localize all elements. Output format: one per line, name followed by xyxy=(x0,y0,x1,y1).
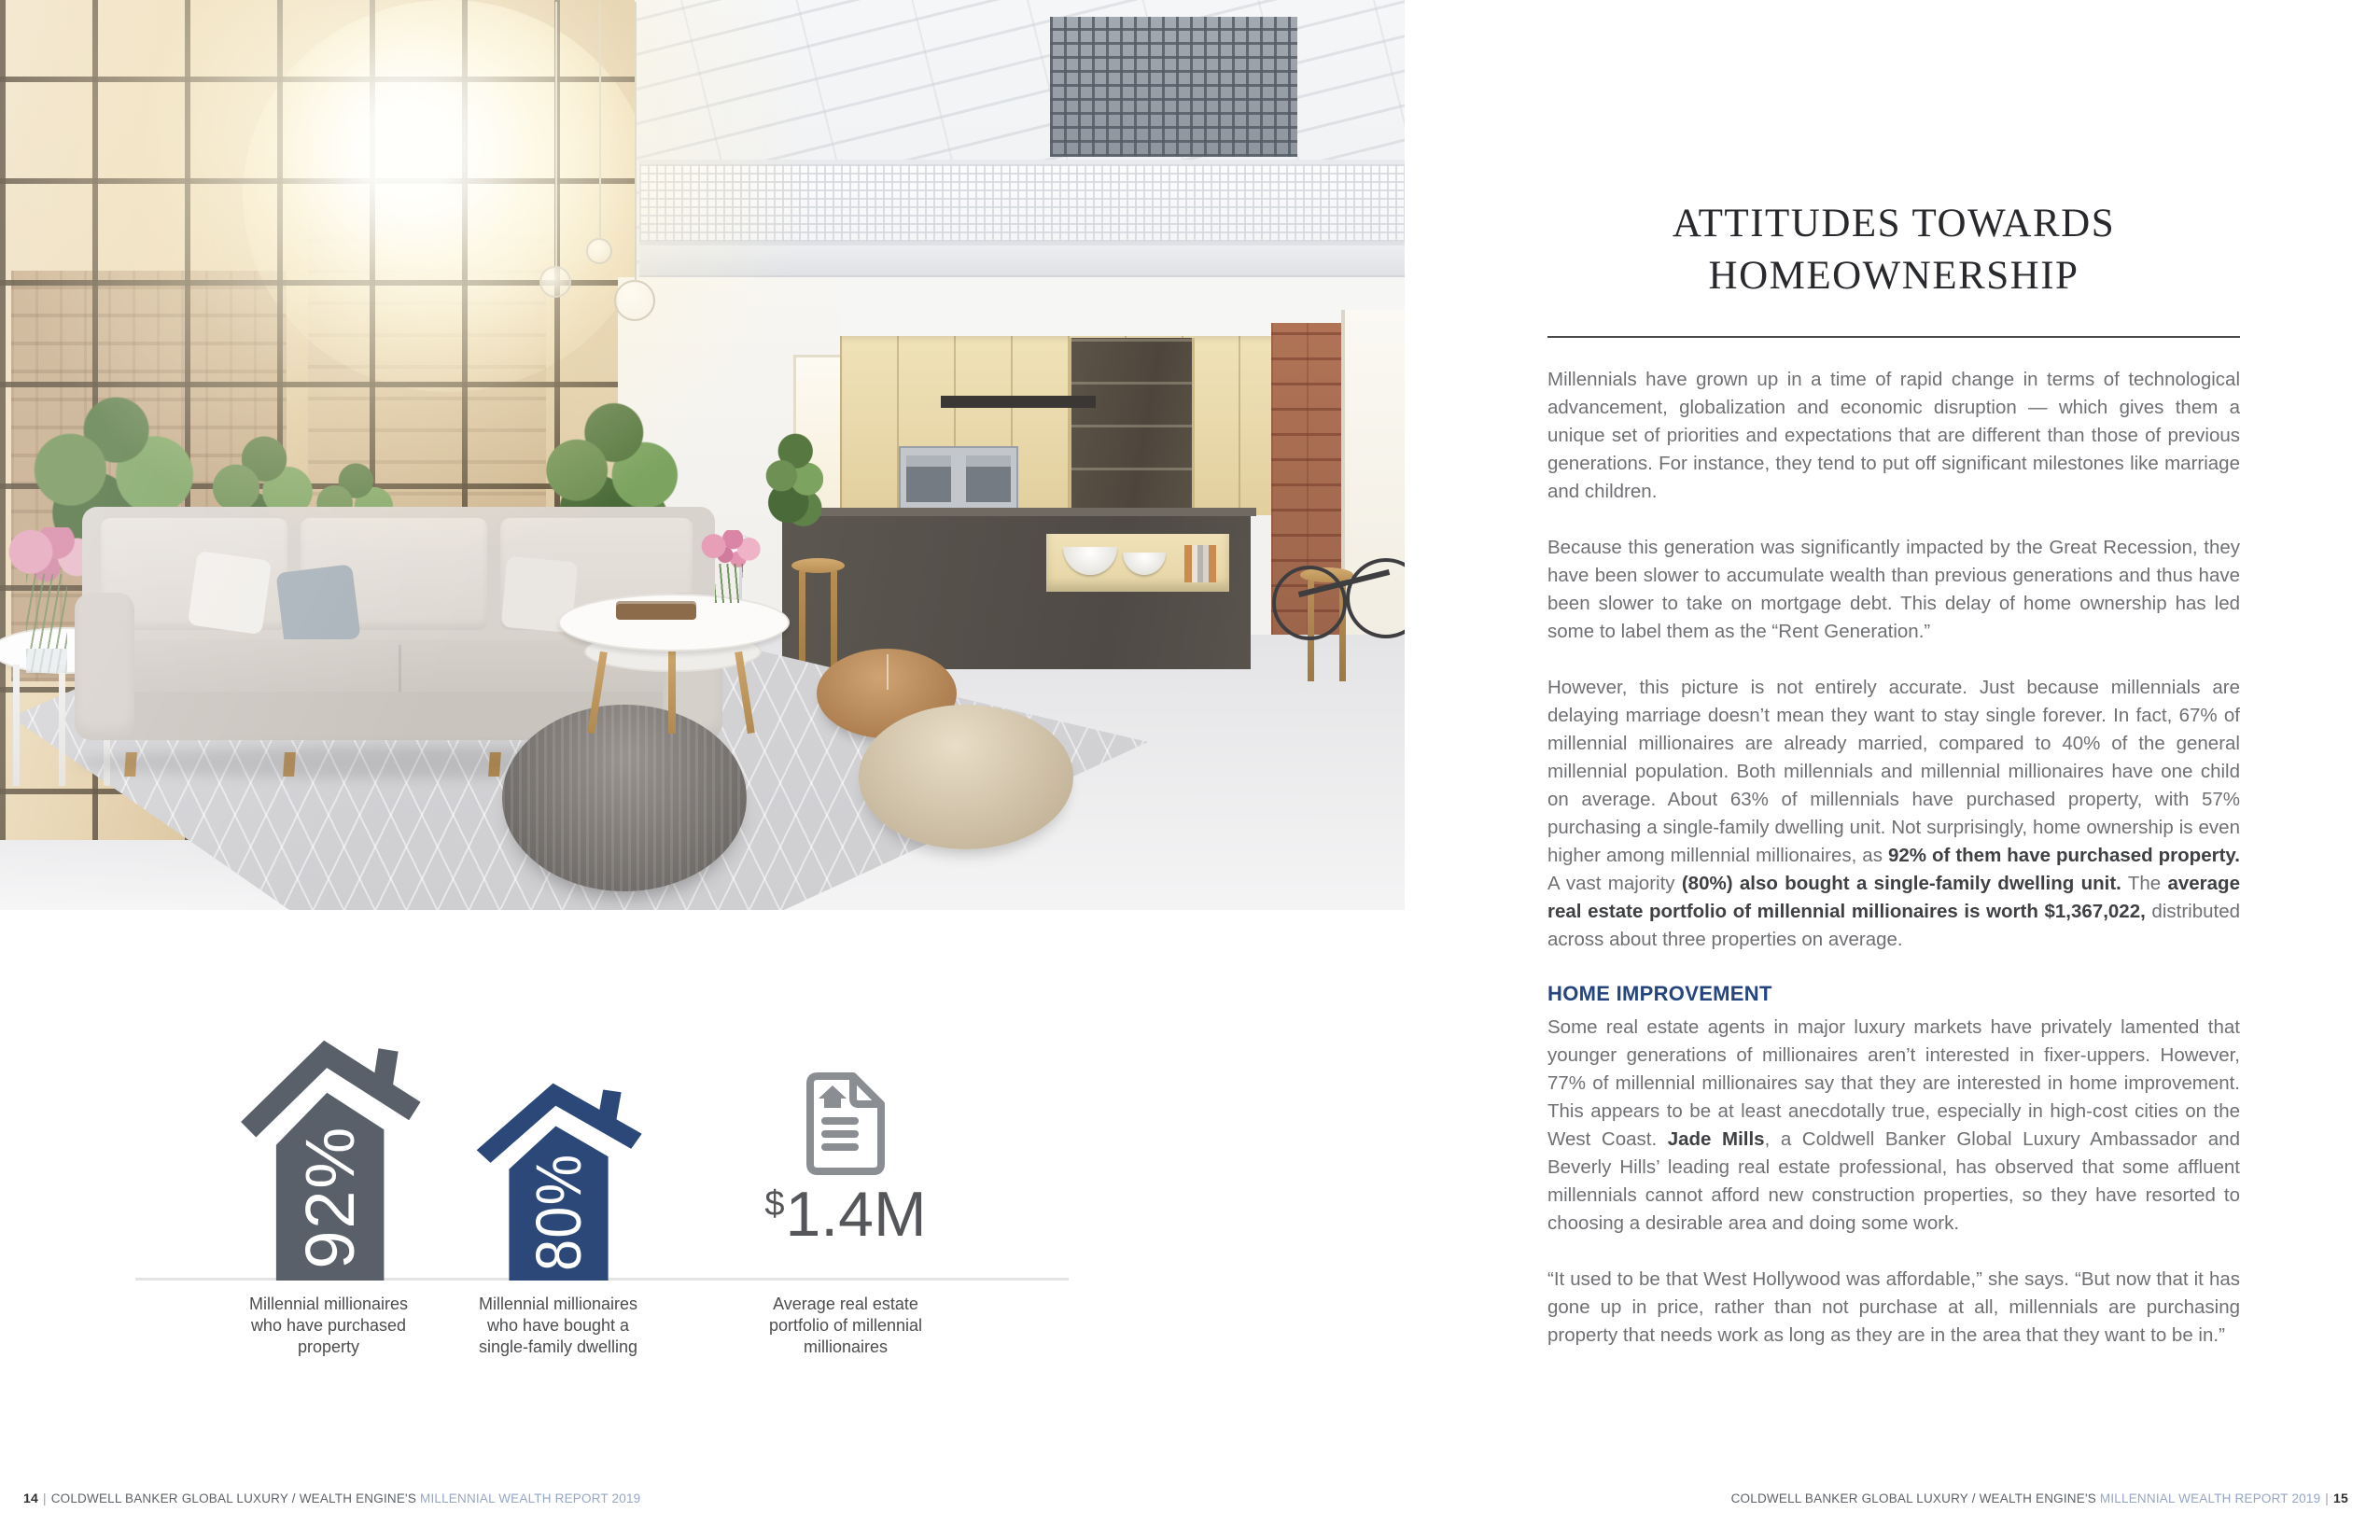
hero-photo xyxy=(0,0,1405,910)
range-hood xyxy=(941,396,1096,408)
body-text: A vast majority xyxy=(1547,873,1682,894)
bowl xyxy=(1063,547,1117,575)
paragraph: “It used to be that West Hollywood was a… xyxy=(1547,1266,2240,1350)
footer-brand: COLDWELL BANKER GLOBAL LUXURY / WEALTH E… xyxy=(1731,1491,2096,1505)
article-body: Millennials have grown up in a time of r… xyxy=(1547,366,2240,1350)
built-in-appliances xyxy=(899,446,1018,511)
page-number: 15 xyxy=(2333,1491,2348,1505)
table-leg xyxy=(668,651,676,734)
page-number: 14 xyxy=(23,1491,38,1505)
sofa-arm xyxy=(75,593,134,740)
document-icon-svg xyxy=(799,1071,892,1176)
title-line-2: HOMEOWNERSHIP xyxy=(1709,254,2079,298)
stat-label: Average real estate portfolio of millenn… xyxy=(715,1294,976,1358)
article: ATTITUDES TOWARDS HOMEOWNERSHIP Millenni… xyxy=(1547,198,2240,1378)
title-rule xyxy=(1547,336,2240,338)
table-leg xyxy=(735,651,755,734)
coffee-table xyxy=(558,594,786,734)
footer-report-title: MILLENNIAL WEALTH REPORT 2019 xyxy=(2100,1491,2320,1505)
section-heading: HOME IMPROVEMENT xyxy=(1547,982,2240,1006)
footer-separator: | xyxy=(2320,1491,2333,1505)
footer-report-title: MILLENNIAL WEALTH REPORT 2019 xyxy=(420,1491,640,1505)
stat-label: Millennial millionaires who have purchas… xyxy=(198,1294,459,1358)
house-icon: 80% xyxy=(472,1078,642,1281)
gray-pouf xyxy=(502,705,747,891)
open-shelf xyxy=(1046,534,1229,592)
house-icon: 92% xyxy=(236,1034,421,1281)
beige-pouf xyxy=(859,705,1073,849)
paragraph: Because this generation was significantl… xyxy=(1547,534,2240,646)
throw-pillow xyxy=(188,551,272,635)
pendant-lamp xyxy=(614,280,655,321)
tulip-bouquet xyxy=(691,530,767,603)
body-text: Because this generation was significantl… xyxy=(1547,537,2240,642)
footer-brand: COLDWELL BANKER GLOBAL LUXURY / WEALTH E… xyxy=(51,1491,416,1505)
house-icon-svg: 92% xyxy=(236,1034,421,1281)
property-document-icon xyxy=(799,1071,892,1176)
potted-plant xyxy=(765,427,823,535)
sofa-leg xyxy=(124,752,137,777)
body-text: “It used to be that West Hollywood was a… xyxy=(1547,1268,2240,1346)
bold-text: (80%) also bought a single-family dwelli… xyxy=(1682,873,2121,894)
stat-label: Millennial millionaires who have bought … xyxy=(427,1294,689,1358)
report-spread: 92% 80% $1.4M Millennial millionaires wh… xyxy=(0,0,2380,1540)
pendant-lamp xyxy=(586,238,612,264)
dollar-sign: $ xyxy=(764,1184,784,1224)
stat-value: 92% xyxy=(291,1126,369,1269)
mezzanine-floor xyxy=(639,245,1405,277)
paragraph: However, this picture is not entirely ac… xyxy=(1547,674,2240,954)
serving-tray xyxy=(616,601,696,620)
body-text: The xyxy=(2121,873,2168,894)
throw-pillow xyxy=(275,564,360,647)
stat-value: 80% xyxy=(523,1154,595,1271)
sofa-leg xyxy=(283,752,296,777)
body-text: Millennials have grown up in a time of r… xyxy=(1547,369,2240,502)
paragraph: Some real estate agents in major luxury … xyxy=(1547,1014,2240,1238)
pendant-lamp xyxy=(539,266,571,298)
sofa-leg xyxy=(488,752,501,777)
footer-left: 14|COLDWELL BANKER GLOBAL LUXURY / WEALT… xyxy=(23,1491,640,1505)
footer-separator: | xyxy=(38,1491,51,1505)
title-line-1: ATTITUDES TOWARDS xyxy=(1673,202,2115,245)
bowl xyxy=(1123,553,1166,575)
kitchen-island xyxy=(782,514,1251,669)
stat-amount: 1.4M xyxy=(785,1179,926,1250)
mezzanine-railing xyxy=(639,160,1405,245)
books xyxy=(1184,545,1216,582)
stat-value: $1.4M xyxy=(743,1178,948,1251)
bold-text: Jade Mills xyxy=(1668,1128,1765,1150)
paragraph: Millennials have grown up in a time of r… xyxy=(1547,366,2240,506)
bold-text: 92% of them have purchased property. xyxy=(1888,845,2240,866)
metal-grate-panel xyxy=(1050,17,1297,157)
bicycle-wheel xyxy=(1272,566,1347,640)
page-title: ATTITUDES TOWARDS HOMEOWNERSHIP xyxy=(1547,198,2240,302)
footer-right: COLDWELL BANKER GLOBAL LUXURY / WEALTH E… xyxy=(1731,1491,2348,1505)
glass-cabinet xyxy=(1069,338,1195,513)
body-text: However, this picture is not entirely ac… xyxy=(1547,677,2240,866)
house-icon-svg: 80% xyxy=(472,1078,642,1281)
